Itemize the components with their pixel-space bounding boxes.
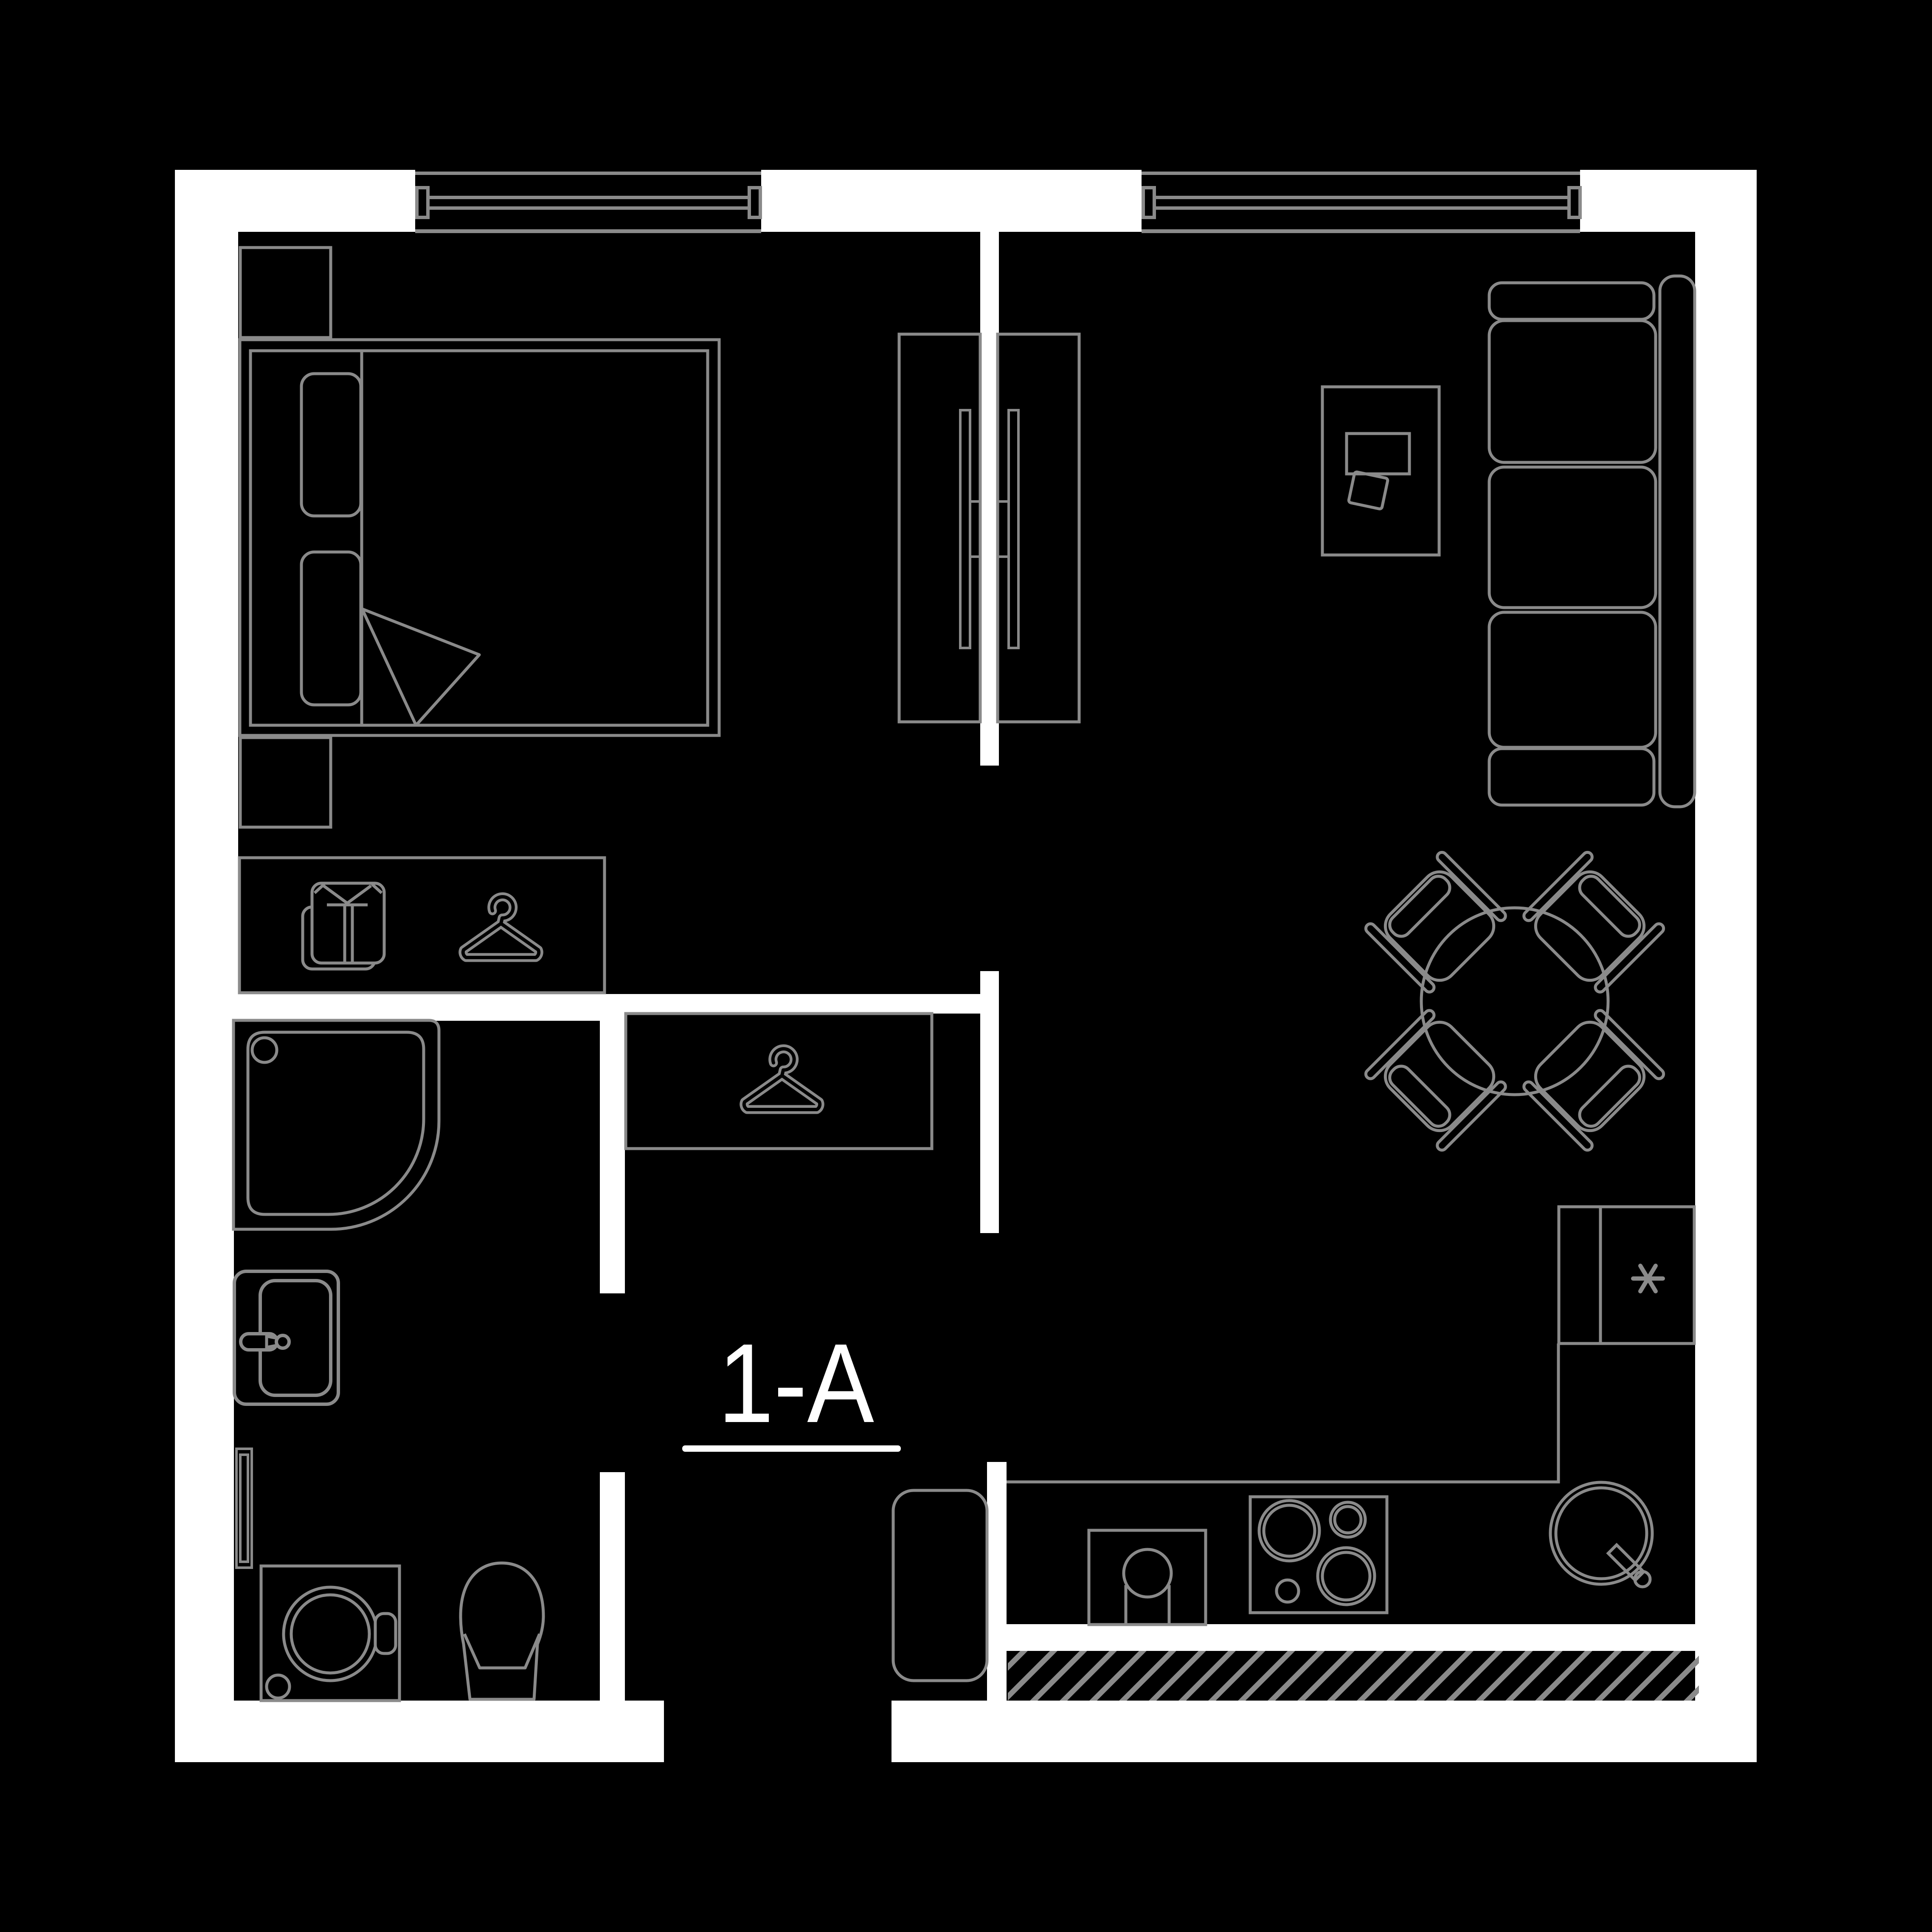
svg-text:1-A: 1-A xyxy=(718,1321,875,1446)
